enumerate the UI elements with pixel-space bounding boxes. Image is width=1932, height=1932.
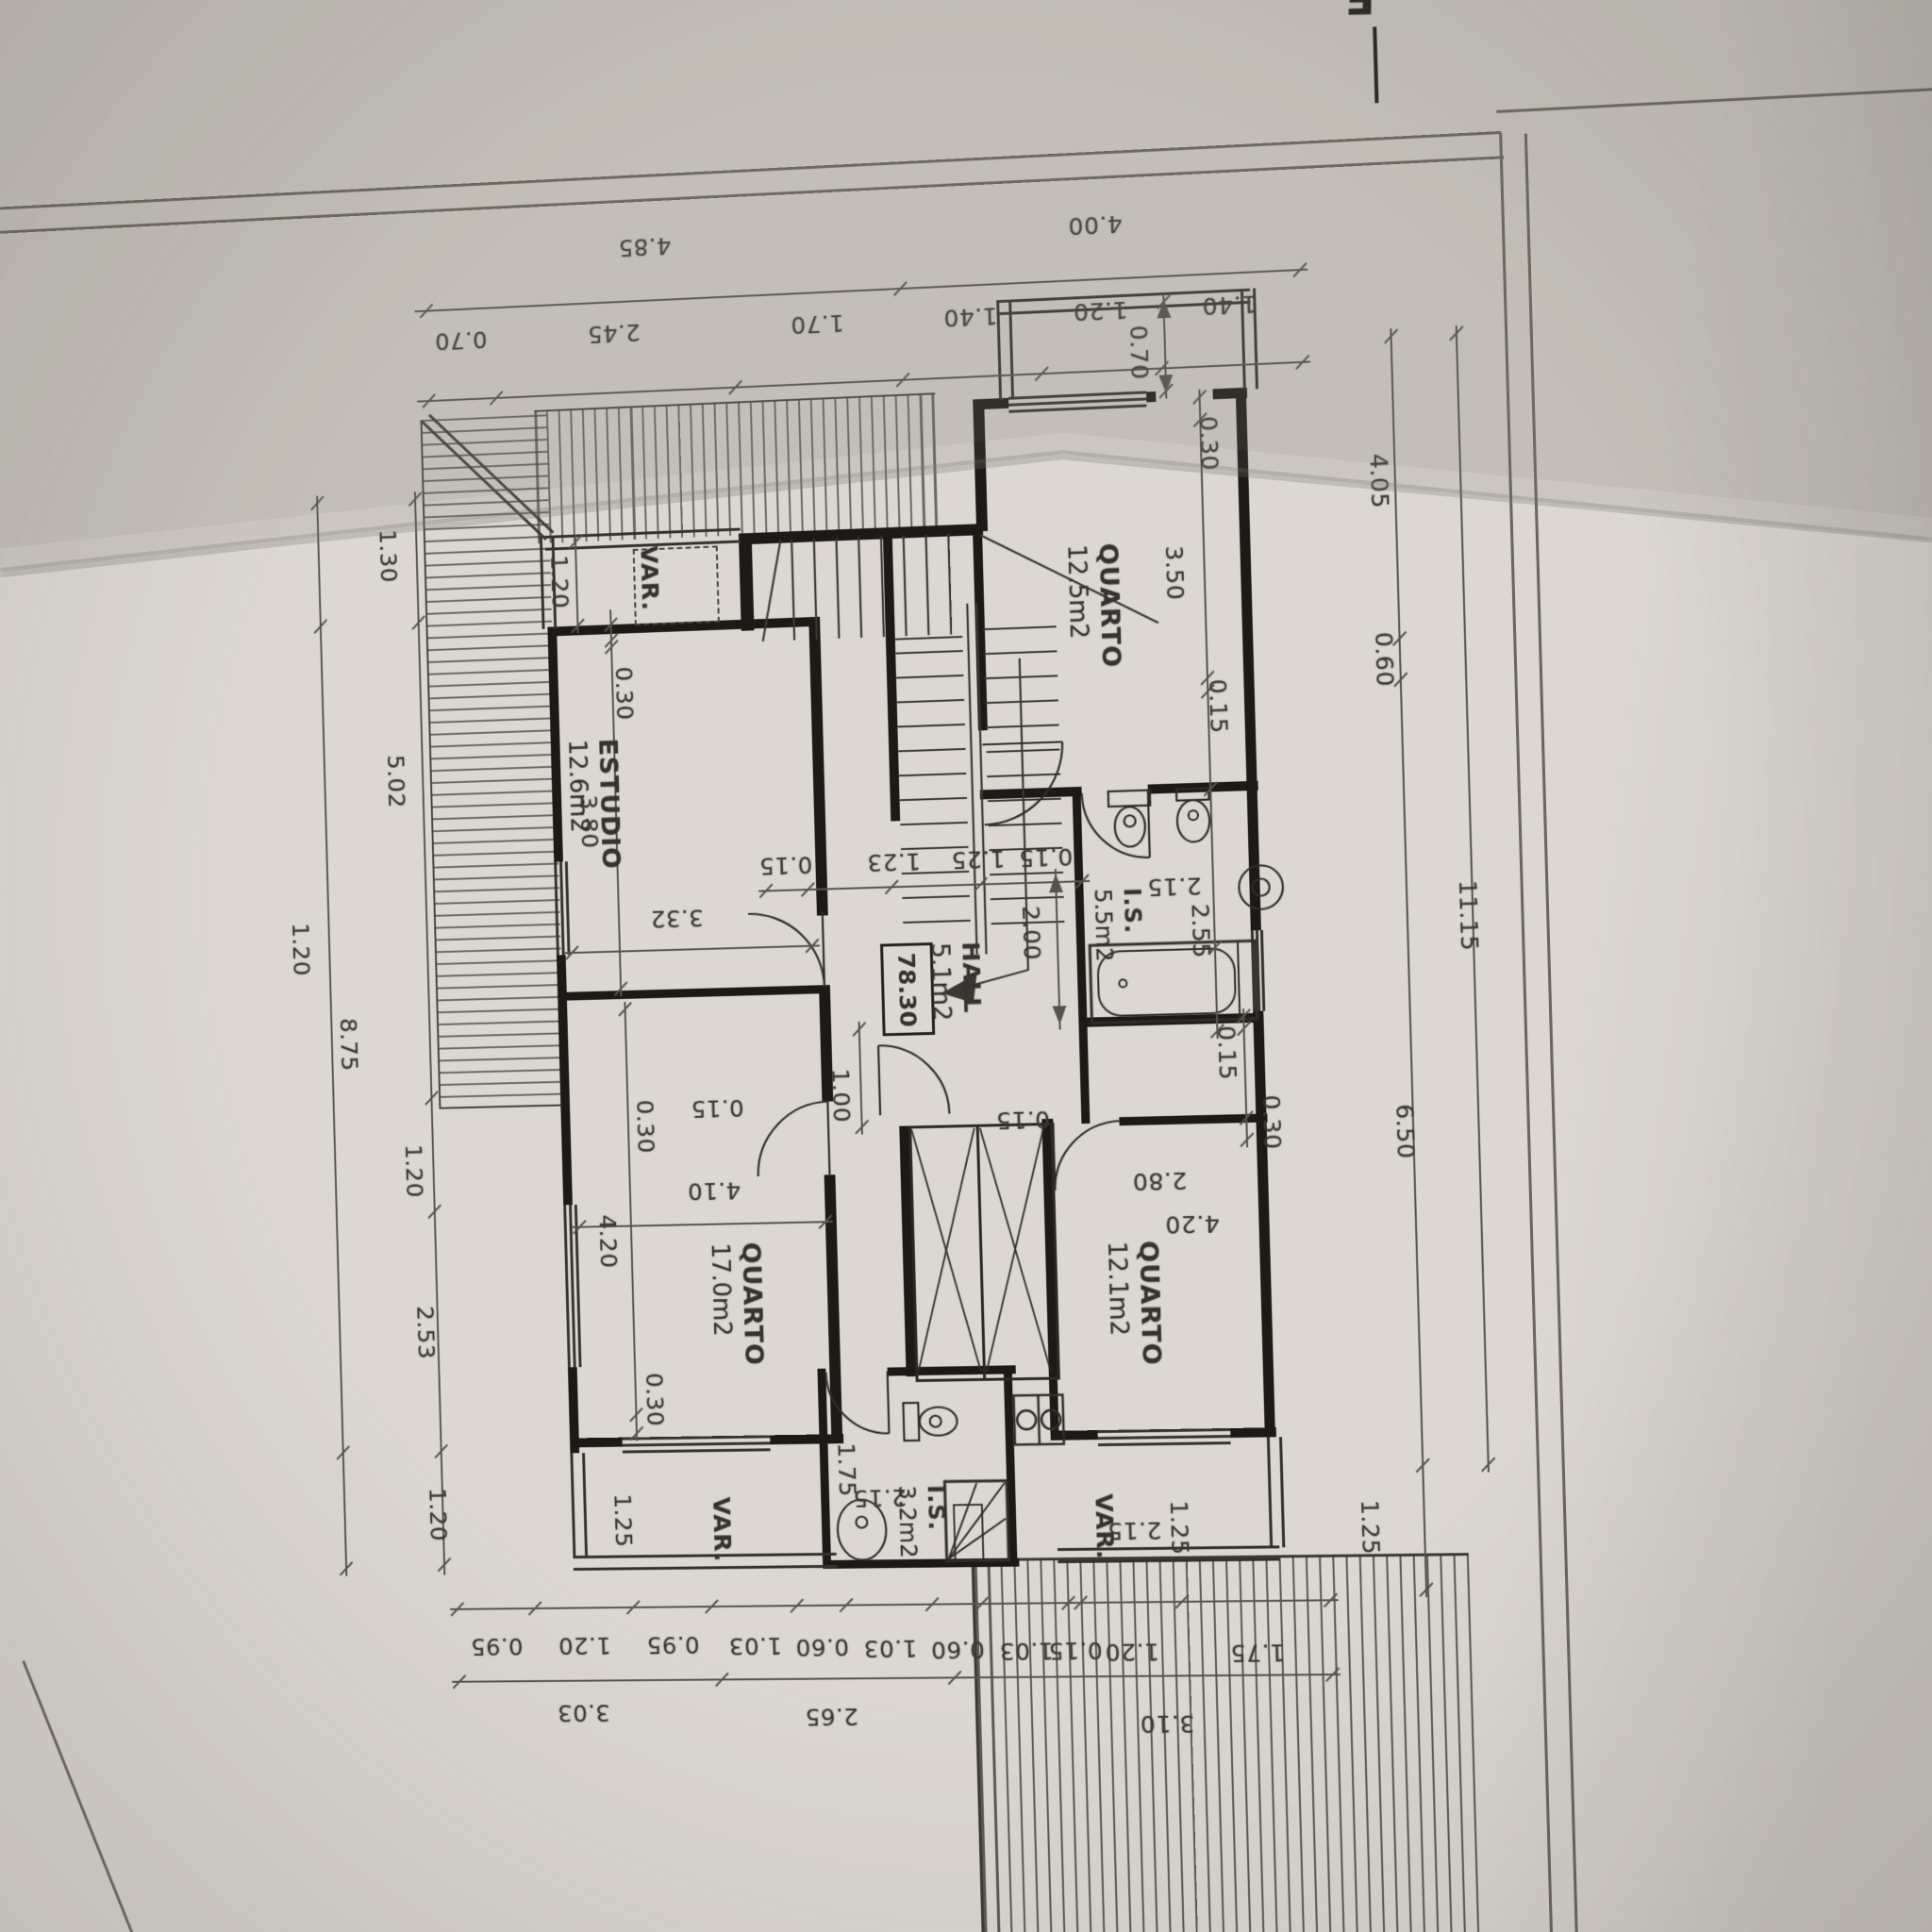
room-label-estudio: ESTUDIO12.6m2 (560, 738, 627, 871)
dimension-label: 1.03 (728, 1632, 782, 1659)
sheet-edge-mark: E (1345, 0, 1375, 24)
room-label-quarto-125: QUARTO12.5m2 (1059, 542, 1128, 670)
dimension-label: 0.15 (1212, 1025, 1241, 1081)
dimension-label: 5.02 (382, 754, 409, 808)
room-label-quarto-121: QUARTO12.1m2 (1099, 1241, 1168, 1367)
toilet (1108, 791, 1152, 848)
dimension-label: 2.55 (1186, 903, 1215, 958)
dimension-label: 0.15 (1018, 842, 1073, 872)
dimension-label: 1.75 (1230, 1639, 1286, 1667)
dimension-label: 3.50 (1159, 545, 1189, 601)
dimension-label: 3.10 (1140, 1709, 1195, 1738)
wardrobes (908, 1123, 1060, 1382)
dimension-label: 0.95 (646, 1631, 700, 1658)
sheet-border (6, 0, 1924, 53)
dimension-label: 1.20 (400, 1144, 428, 1198)
dimension-label: 2.65 (805, 1703, 859, 1730)
room-label-is-55: I.S.5.5m2 (1087, 888, 1148, 962)
dimension-label: 1.40 (943, 302, 998, 332)
bidet (1176, 788, 1210, 841)
dimension-label: 0.30 (1257, 1094, 1286, 1150)
fixtures (818, 786, 1302, 1562)
dimension-label: 0.15 (758, 851, 813, 880)
dimension-label: 1.40 (1202, 290, 1257, 320)
dimension-label: 4.05 (1364, 453, 1393, 509)
dimension-label: 11.15 (1453, 880, 1483, 952)
dimension-label: 1.20 (287, 923, 314, 976)
exterior-walls (6, 0, 1924, 53)
toilet-small (903, 1402, 958, 1441)
dimension-label: 1.25 (1355, 1500, 1384, 1556)
dimension-label: 1.03 (999, 1637, 1054, 1665)
dimension-label: 4.20 (1164, 1209, 1220, 1238)
interior-walls (6, 0, 1924, 53)
dimension-label: 0.60 (930, 1636, 985, 1664)
dimension-label: 4.10 (687, 1176, 741, 1205)
dimension-label: 0.30 (609, 666, 638, 721)
sheet-edge-mark-line (1373, 26, 1378, 103)
dimension-label: 1.25 (1164, 1500, 1193, 1555)
drawing-sheet: E (6, 0, 1932, 1932)
room-label-var-br: VAR. (1088, 1493, 1121, 1560)
dim-chain-corridor-width (853, 1022, 869, 1135)
dimension-label: 4.85 (618, 232, 672, 261)
dimension-label: 0.15 (995, 1105, 1050, 1133)
dim-chain-hall-height (1050, 869, 1066, 1030)
room-label-quarto-17: QUARTO17.0m2 (703, 1241, 770, 1366)
dimension-label: 8.75 (335, 1018, 362, 1072)
dimension-label: 0.70 (1124, 325, 1154, 380)
dimension-label: 1.25 (608, 1493, 637, 1547)
dim-chain-balcony-depth (1157, 294, 1173, 399)
dimension-label: 6.50 (1391, 1104, 1420, 1159)
dimension-label: 1.00 (826, 1068, 855, 1123)
dimension-label: 1.25 (951, 844, 1006, 874)
dimension-label: 0.30 (1194, 415, 1224, 471)
dimension-label: 4.20 (593, 1214, 622, 1269)
dimension-label: 0.15 (691, 1093, 744, 1122)
washbasin (1239, 865, 1284, 910)
dim-chain-right-middle (1384, 328, 1433, 1597)
dimension-label: 0.95 (470, 1632, 524, 1659)
parapets (6, 0, 1924, 53)
dimension-label: 0.15 (1048, 1636, 1103, 1664)
dimension-label: 1.30 (374, 529, 401, 584)
dimension-label: 1.70 (791, 308, 845, 338)
dim-chain-estudio-width (564, 939, 820, 959)
room-label-hall: HALL5.1m2 (923, 941, 987, 1022)
roof-hatch-top (6, 0, 1924, 53)
room-label-is-32: I.S.3.2m2 (891, 1485, 952, 1558)
dimension-label: 2.45 (587, 318, 641, 347)
dimension-label: 0.15 (1203, 678, 1232, 734)
dimension-label: 0.60 (795, 1633, 850, 1660)
dimension-label: 1.20 (1073, 295, 1128, 325)
room-label-var-top: VAR. (633, 545, 665, 612)
dimension-label: 0.60 (1369, 631, 1398, 687)
dimension-label: 3.03 (557, 1699, 610, 1726)
dimension-label: 2.80 (1132, 1166, 1188, 1194)
dim-chain-top-outer (414, 263, 1307, 318)
dimension-labels: 0.702.451.701.401.201.404.854.001.305.02… (6, 0, 1924, 53)
dimension-label: 1.20 (1105, 1638, 1160, 1666)
dimension-label: 1.23 (867, 847, 922, 876)
floor-plan-photo: E (0, 0, 1932, 1932)
dimension-label: 2.53 (411, 1306, 440, 1359)
dimension-label: 4.00 (1068, 209, 1124, 240)
dimension-label: 2.15 (1146, 872, 1202, 901)
dimension-label: 0.70 (434, 325, 488, 355)
dimension-label: 1.20 (558, 1631, 611, 1658)
dimension-label: 3.32 (650, 904, 704, 932)
dimension-label: 0.30 (631, 1099, 659, 1154)
dimension-label: 1.20 (424, 1488, 452, 1541)
room-label-var-bl: VAR. (706, 1496, 738, 1562)
dimension-label: 1.20 (545, 555, 574, 609)
dim-chain-hall-top (758, 874, 1090, 898)
dimension-label: 0.30 (641, 1373, 669, 1427)
dimension-label: 2.00 (1017, 906, 1046, 961)
windows (6, 0, 1924, 53)
roof-hatch-bottom (6, 0, 1924, 53)
dimension-label: 1.03 (863, 1634, 918, 1661)
